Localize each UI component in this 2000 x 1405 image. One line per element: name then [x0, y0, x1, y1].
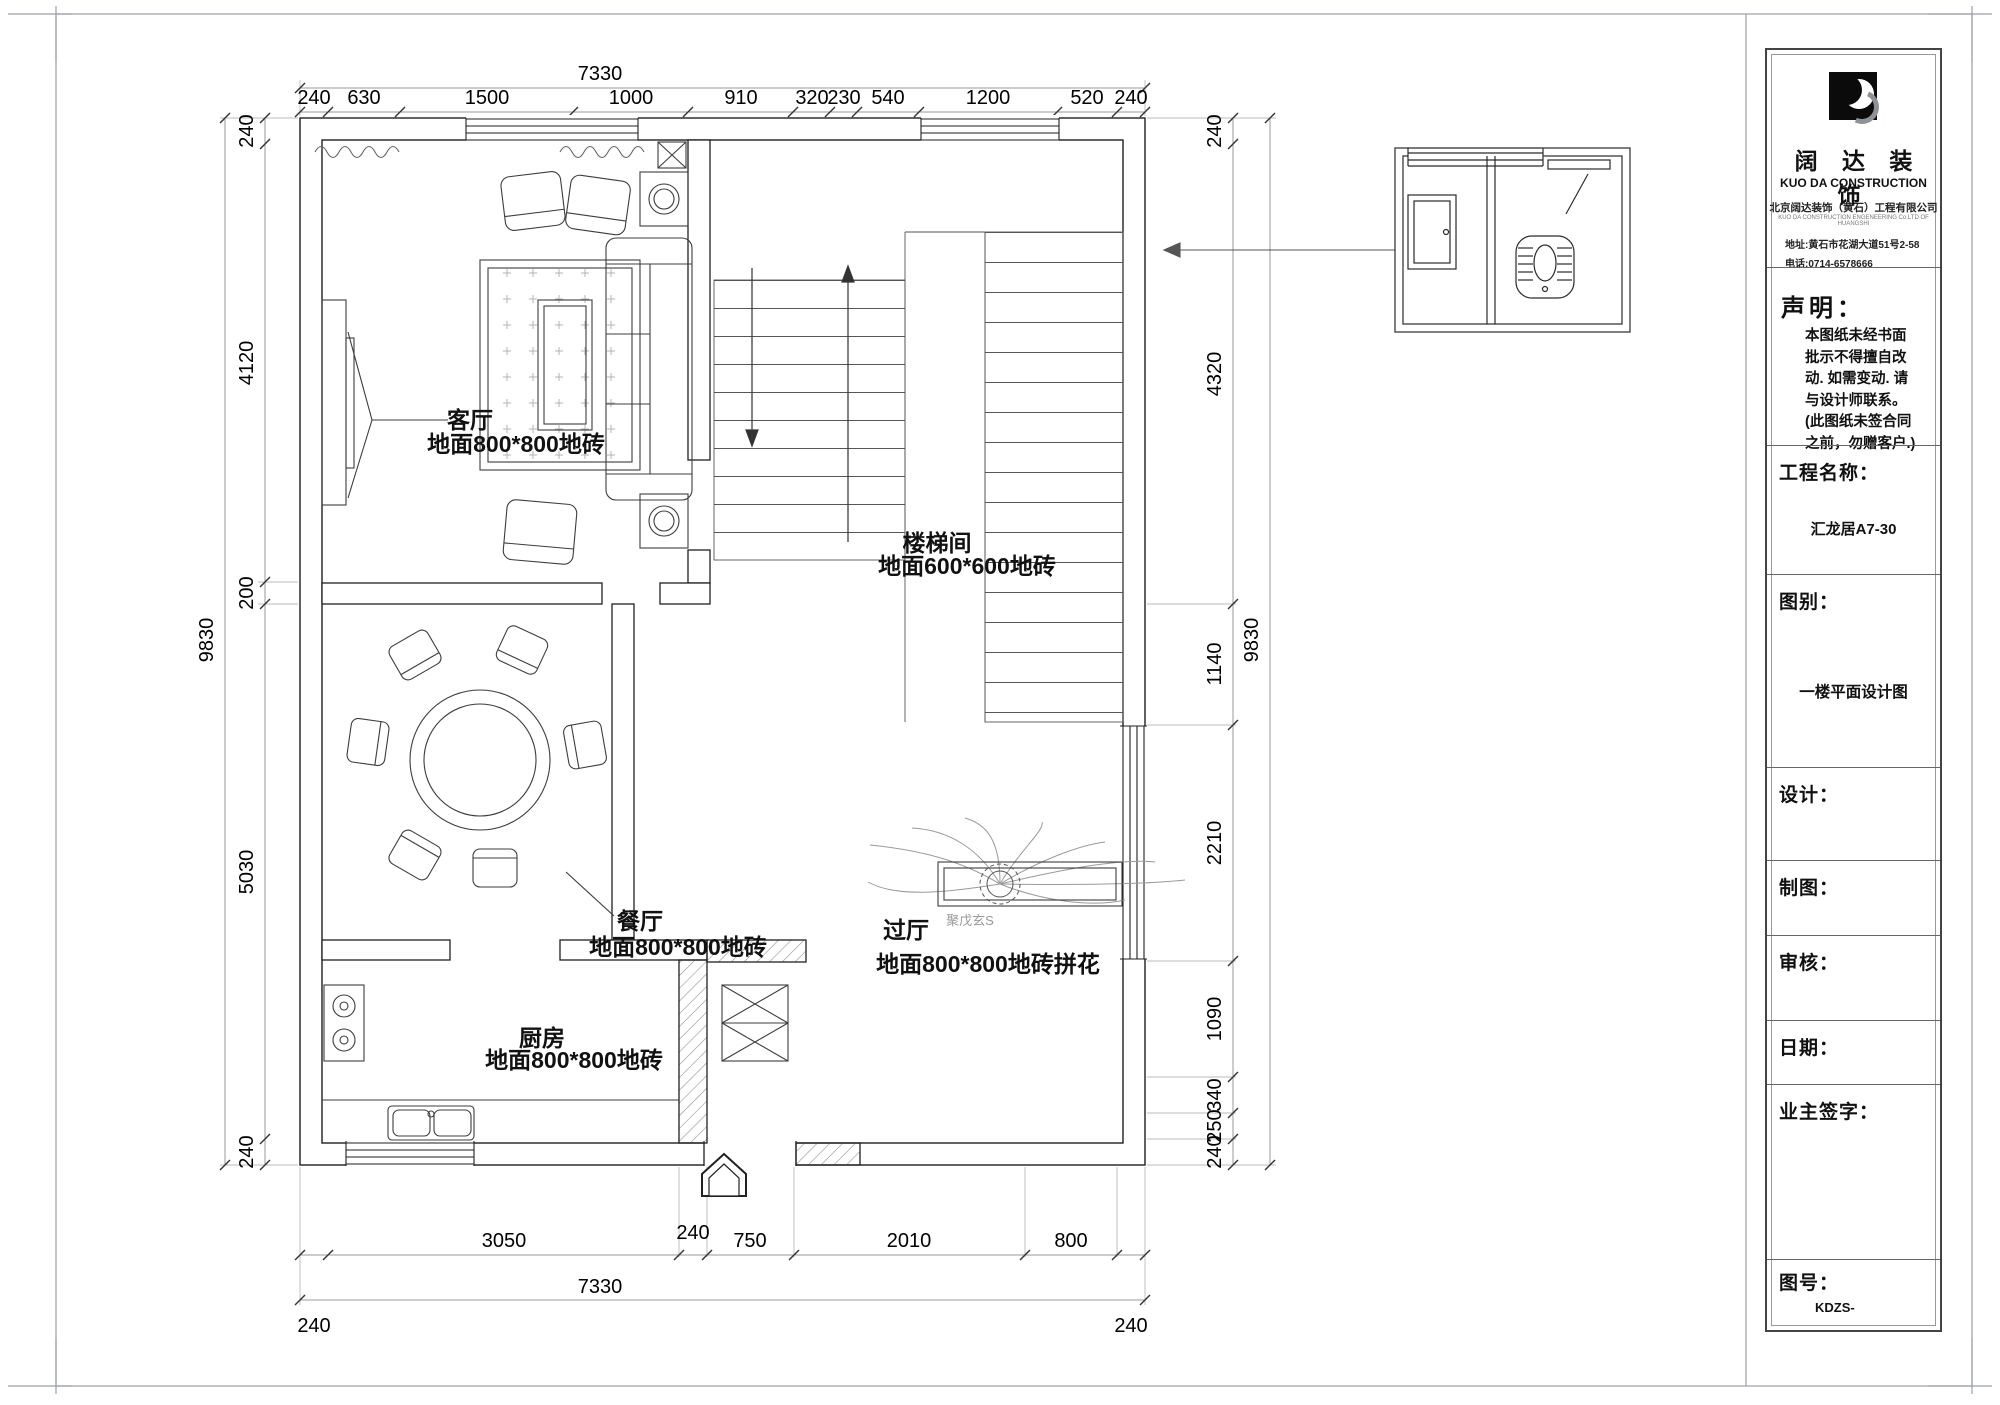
dim-left-seg: 4120 [236, 341, 258, 386]
room-label-dining: 餐厅 [617, 908, 663, 934]
armchair [500, 171, 566, 232]
designer-section: 设计： [1767, 767, 1940, 860]
statement-text: 本图纸未经书面 批示不得擅自改 动. 如需变动. 请 与设计师联系。 (此图纸未… [1805, 326, 1915, 455]
room-label-hall: 过厅 [883, 917, 929, 943]
dim-right-overall: 9830 [1241, 618, 1263, 663]
dining-leader-line [566, 872, 614, 916]
dim-top-seg: 240 [1114, 87, 1147, 109]
dining-furniture [346, 623, 614, 916]
entry-cabinet [722, 985, 788, 1061]
dim-right-seg: 2210 [1204, 821, 1226, 866]
statement-line: 本图纸未经书面 [1805, 326, 1915, 348]
sink [388, 1106, 474, 1140]
room-floor-hall: 地面800*800地砖拼花 [876, 951, 1100, 977]
drafter-section: 制图： [1767, 860, 1940, 935]
dim-top-seg: 230 [827, 87, 860, 109]
room-floor-dining: 地面800*800地砖 [589, 934, 767, 960]
dim-top-overall: 7330 [578, 63, 623, 85]
dim-bottom-seg: 240 [676, 1222, 709, 1244]
armchair [565, 174, 632, 236]
owner-signature-label: 业主签字： [1779, 1097, 1879, 1124]
dim-bottom-overall: 7330 [578, 1276, 623, 1298]
statement-line: 与设计师联系。 [1805, 391, 1915, 413]
dim-top-seg: 1500 [465, 87, 510, 109]
dim-left-seg: 240 [236, 1135, 258, 1168]
drawing-type-value: 一楼平面设计图 [1767, 680, 1940, 702]
dim-left-seg: 200 [236, 576, 258, 609]
bathroom-detail-plan [1395, 146, 1630, 332]
dim-left-seg: 240 [236, 114, 258, 147]
drawing-number-section: 图号： KDZS- [1767, 1259, 1940, 1334]
reviewer-section: 审核： [1767, 935, 1940, 1020]
brand-name-en: KUO DA CONSTRUCTION [1767, 176, 1940, 190]
statement-line: 动. 如需变动. 请 [1805, 369, 1915, 391]
dim-right-seg: 1090 [1204, 997, 1226, 1042]
drawing-number-label: 图号： [1779, 1268, 1839, 1295]
dim-right-seg: 4320 [1204, 352, 1226, 397]
dim-top-seg: 320 [795, 87, 828, 109]
dim-right-seg: 340 [1204, 1078, 1226, 1111]
side-table-lamp [640, 494, 688, 548]
dim-bottom-seg: 750 [733, 1230, 766, 1252]
side-table-lamp [640, 172, 688, 226]
armchair [503, 499, 578, 565]
dining-chair [562, 720, 607, 770]
dining-chair [386, 828, 443, 883]
dim-left-overall: 9830 [196, 618, 218, 663]
room-label-living: 客厅 [447, 407, 493, 433]
dim-bottom-corner: 240 [1114, 1315, 1147, 1337]
dim-right-seg: 240 [1204, 1135, 1226, 1168]
dim-text-top: 7330 240 630 1500 1000 910 320 230 540 1… [297, 63, 1147, 109]
detail-leader-arrow [1164, 243, 1395, 257]
dim-right-seg: 240 [1204, 114, 1226, 147]
dim-top-seg: 630 [347, 87, 380, 109]
room-floor-stair: 地面600*600地砖 [878, 553, 1056, 579]
dim-left-seg: 5030 [236, 850, 258, 895]
drawing-type-section: 图别： 一楼平面设计图 [1767, 574, 1940, 767]
corner-box [658, 142, 686, 168]
statement-line: 批示不得擅自改 [1805, 348, 1915, 370]
project-name-value: 汇龙居A7-30 [1767, 518, 1940, 539]
dim-top-seg: 910 [724, 87, 757, 109]
reviewer-label: 审核： [1779, 948, 1839, 975]
date-section: 日期： [1767, 1020, 1940, 1084]
company-full-name: 北京阔达装饰（黄石）工程有限公司 [1767, 200, 1940, 215]
stove [324, 985, 364, 1061]
living-room-furniture [315, 142, 692, 565]
washer [1408, 195, 1456, 269]
project-name-section: 工程名称： 汇龙居A7-30 [1767, 445, 1940, 574]
drawing-type-label: 图别： [1779, 587, 1839, 614]
statement-line: (此图纸未签合同 [1805, 412, 1915, 434]
tv-cabinet [322, 300, 448, 505]
designer-label: 设计： [1779, 780, 1839, 807]
dim-bottom-seg: 3050 [482, 1230, 527, 1252]
dim-top-seg: 240 [297, 87, 330, 109]
dim-top-seg: 520 [1070, 87, 1103, 109]
company-full-name-en: KUO DA CONSTRUCTION ENGENEERING Co.LTD O… [1767, 215, 1940, 227]
company-address: 地址:黄石市花湖大道51号2-58 [1785, 236, 1919, 251]
dim-text-left: 240 4120 200 5030 240 9830 [196, 114, 258, 1168]
drafter-label: 制图： [1779, 873, 1839, 900]
dining-chair [473, 849, 517, 887]
date-label: 日期： [1779, 1033, 1839, 1060]
company-logo [1829, 72, 1877, 120]
staircase [714, 232, 1123, 722]
owner-signature-section: 业主签字： [1767, 1084, 1940, 1259]
dining-chair [346, 718, 390, 767]
dining-chair [386, 628, 443, 683]
dim-bottom-corner: 240 [297, 1315, 330, 1337]
detail-door [1548, 160, 1610, 214]
floor-plan-drawing: 7330 240 630 1500 1000 910 320 230 540 1… [0, 0, 2000, 1400]
dim-bottom-seg: 2010 [887, 1230, 932, 1252]
room-floor-living: 地面800*800地砖 [427, 431, 605, 457]
dim-right-seg: 1140 [1204, 642, 1226, 685]
room-floor-kitchen: 地面800*800地砖 [485, 1047, 663, 1073]
project-name-label: 工程名称： [1779, 458, 1879, 485]
title-block: 阔 达 装 饰 KUO DA CONSTRUCTION 北京阔达装饰（黄石）工程… [1765, 48, 1942, 1332]
dining-chair [494, 623, 550, 676]
curtain-line [315, 147, 644, 158]
statement-section: 声明： 本图纸未经书面 批示不得擅自改 动. 如需变动. 请 与设计师联系。 (… [1767, 267, 1940, 445]
drawing-number-value: KDZS- [1815, 1300, 1855, 1315]
dim-top-seg: 540 [871, 87, 904, 109]
statement-title: 声明： [1781, 288, 1865, 323]
plant-watermark: 聚戊玄S [946, 913, 994, 928]
dim-top-seg: 1200 [966, 87, 1011, 109]
dim-bottom-seg: 800 [1054, 1230, 1087, 1252]
dim-text-bottom: 3050 240 750 2010 800 7330 240 240 [297, 1222, 1147, 1337]
company-header: 阔 达 装 饰 KUO DA CONSTRUCTION 北京阔达装饰（黄石）工程… [1767, 50, 1940, 267]
dim-top-seg: 1000 [609, 87, 654, 109]
squat-toilet [1516, 236, 1574, 298]
